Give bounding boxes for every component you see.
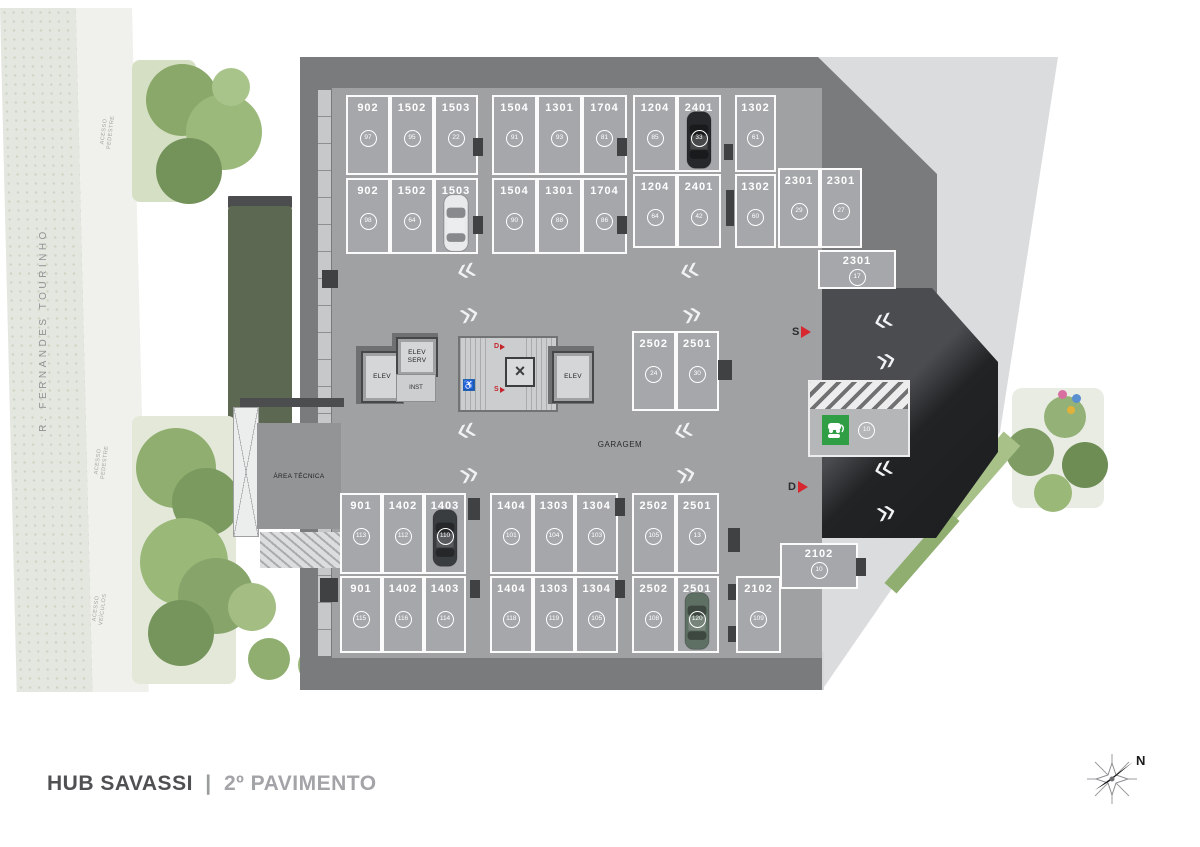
spot-number: 1502	[398, 102, 426, 114]
spot-number: 1504	[500, 185, 528, 197]
parking-spot-2102: 210210	[780, 543, 858, 589]
spot-id-badge: 33	[691, 130, 708, 147]
spot-number: 1504	[500, 102, 528, 114]
column-block	[322, 270, 338, 288]
column-block	[728, 528, 740, 552]
parking-spot-2501: 2501 120	[676, 576, 720, 653]
spot-number: 2301	[785, 175, 813, 187]
column-block	[724, 144, 733, 160]
spot-id-badge: 95	[404, 130, 421, 147]
parking-group-t2b: 150490130188170486	[492, 178, 627, 254]
parking-spot-1404: 1404118	[490, 576, 533, 653]
spot-id-badge: 105	[645, 528, 662, 545]
parking-spot-1403: 1403114	[424, 576, 466, 653]
stair-up-marker: S	[494, 386, 505, 393]
parking-group-b1a: 90111314021121403 110	[340, 493, 466, 574]
parking-group-t1c: 1204852401 33	[633, 95, 721, 172]
spot-id-badge: 30	[689, 366, 706, 383]
north-label: N	[1136, 753, 1145, 768]
column-block	[726, 190, 734, 226]
arrow-right-icon	[500, 344, 505, 350]
parking-spot-1502: 150264	[390, 178, 434, 254]
spot-number: 1303	[540, 500, 568, 512]
tree-blob	[1062, 442, 1108, 488]
floor-name: 2º PAVIMENTO	[224, 772, 377, 795]
parking-group-b2a: 90111514021161403114	[340, 576, 466, 653]
parking-group-b2b: 140411813031191304105	[490, 576, 618, 653]
spot-id-badge: 114	[437, 611, 454, 628]
spot-id-badge: 61	[747, 130, 764, 147]
spot-number: 901	[350, 583, 371, 595]
parking-spot-1301: 130188	[537, 178, 582, 254]
parking-spot-2501: 250130	[676, 331, 720, 411]
stair-up-label: S	[494, 386, 499, 393]
spot-number: 2502	[640, 500, 668, 512]
spot-id-badge: 109	[750, 611, 767, 628]
parking-spot-902: 90298	[346, 178, 390, 254]
spot-number: 1704	[590, 185, 618, 197]
spot-number: 2102	[744, 583, 772, 595]
left-wall-detail	[318, 90, 331, 656]
area-tecnica-room: ÁREA TÉCNICA	[257, 423, 341, 529]
ev-charging-icon	[822, 415, 849, 445]
parking-group-b1c: 2502105250113	[632, 493, 719, 574]
parking-spot-2501: 250113	[676, 493, 720, 574]
arrow-right-icon	[801, 326, 811, 338]
elevator-service: ELEV SERV	[396, 337, 438, 377]
accessibility-icon: ♿	[463, 379, 475, 391]
spot-id-badge: 86	[596, 213, 613, 230]
spot-number: 2501	[683, 338, 711, 350]
parking-spot-1503: 150322	[434, 95, 478, 175]
tree-blob	[1072, 394, 1081, 403]
spot-id-badge: 24	[645, 366, 662, 383]
column-block	[615, 498, 625, 516]
spot-number: 1303	[540, 583, 568, 595]
spot-number: 1502	[398, 185, 426, 197]
parking-spot-1303: 1303119	[533, 576, 576, 653]
spot-number: 2102	[805, 548, 833, 560]
parking-group-t2e: 230129230127	[778, 168, 862, 248]
tree-blob	[228, 583, 276, 631]
parking-group-t1d: 130261	[735, 95, 776, 172]
spot-number: 2502	[640, 583, 668, 595]
column-block	[728, 626, 736, 642]
spot-id-badge: 27	[833, 203, 850, 220]
arrow-right-icon	[500, 387, 505, 393]
parking-spot-1502: 150295	[390, 95, 434, 175]
spot-number: 902	[357, 185, 378, 197]
ramp-up-marker: S	[792, 326, 811, 338]
parking-spot-2401: 2401 33	[677, 95, 721, 172]
stair-down-label: D	[494, 343, 499, 350]
spot-id-badge: 103	[588, 528, 605, 545]
garagem-label: GARAGEM	[560, 440, 680, 449]
spot-id-badge: 119	[546, 611, 563, 628]
tree-blob	[212, 68, 250, 106]
parking-spot-1204: 120464	[633, 174, 677, 248]
spot-id-badge: 108	[645, 611, 662, 628]
parking-spot-1204: 120485	[633, 95, 677, 172]
elevator-right: ELEV	[552, 351, 594, 403]
parking-spot-1402: 1402112	[382, 493, 424, 574]
column-block	[470, 580, 480, 598]
column-block	[473, 138, 483, 156]
spot-number: 2501	[683, 500, 711, 512]
spot-id-badge: 88	[551, 213, 568, 230]
spot-id-badge: 90	[506, 213, 523, 230]
parking-spot-1302: 130260	[735, 174, 776, 248]
spot-number: 1402	[389, 583, 417, 595]
column-block	[617, 216, 627, 234]
parking-spot-2502: 2502108	[632, 576, 676, 653]
spot-number: 1404	[497, 500, 525, 512]
parking-group-h2301: 230117	[818, 250, 896, 289]
spot-id-badge: 104	[546, 528, 563, 545]
parking-spot-1403: 1403 110	[424, 493, 466, 574]
parking-group-t2d: 130260	[735, 174, 776, 248]
parking-group-b1b: 140410113031041304103	[490, 493, 618, 574]
compass-rose-icon	[1083, 750, 1141, 813]
spot-number: 1302	[741, 102, 769, 114]
parking-group-t1a: 90297150295150322	[346, 95, 478, 175]
spot-id-badge: 118	[503, 611, 520, 628]
parking-spot-2301: 230127	[820, 168, 862, 248]
spot-id-badge: 29	[791, 203, 808, 220]
parking-spot-1704: 170481	[582, 95, 627, 175]
parking-spot-2502: 250224	[632, 331, 676, 411]
column-block	[615, 580, 625, 598]
column-block	[320, 578, 338, 602]
parking-group-b2c: 25021082501 120	[632, 576, 719, 653]
column-block	[856, 558, 866, 576]
spot-id-badge: 120	[689, 611, 706, 628]
tree-blob	[228, 206, 292, 430]
spot-number: 1204	[641, 102, 669, 114]
arrow-right-icon	[798, 481, 808, 493]
spot-id-badge: 81	[596, 130, 613, 147]
spot-number: 1503	[442, 102, 470, 114]
parking-group-b2d: 2102109	[736, 576, 781, 653]
spot-id-badge: 98	[360, 213, 377, 230]
spot-number: 2301	[827, 175, 855, 187]
parking-spot-1504: 150490	[492, 178, 537, 254]
column-block	[617, 138, 627, 156]
spot-id-badge: 97	[360, 130, 377, 147]
parking-spot-1304: 1304103	[575, 493, 618, 574]
hatched-area	[260, 532, 340, 568]
ramp-down-label: D	[788, 481, 796, 493]
hatch-pattern	[810, 382, 908, 409]
tree-blob	[1034, 474, 1072, 512]
spot-id-badge: 10	[858, 422, 875, 439]
spot-id-badge: 101	[503, 528, 520, 545]
spot-id-badge: 22	[448, 130, 465, 147]
spot-id-badge: 13	[689, 528, 706, 545]
parking-spot-1301: 130193	[537, 95, 582, 175]
column-block	[718, 360, 732, 380]
spot-id-badge: 10	[811, 562, 828, 579]
parking-spot-1504: 150491	[492, 95, 537, 175]
parking-group-h2102: 210210	[780, 543, 858, 589]
spot-number: 1403	[431, 583, 459, 595]
spot-number: 1704	[590, 102, 618, 114]
parking-spot-2502: 2502105	[632, 493, 676, 574]
spot-number: 1402	[389, 500, 417, 512]
tree-blob	[156, 138, 222, 204]
spot-id-badge: 116	[395, 611, 412, 628]
spot-number: 1304	[582, 583, 610, 595]
column-block	[468, 498, 480, 520]
parking-group-t2a: 902981502641503	[346, 178, 478, 254]
spot-number: 1304	[582, 500, 610, 512]
spot-id-badge: 110	[437, 528, 454, 545]
parking-spot-901: 901113	[340, 493, 382, 574]
spot-id-badge: 17	[849, 269, 866, 286]
inst-room: INST	[396, 374, 436, 402]
spot-number: 1302	[741, 181, 769, 193]
parking-spot-1404: 1404101	[490, 493, 533, 574]
column-block	[728, 584, 736, 600]
tree-blob	[1067, 406, 1075, 414]
street-name-label: R. FERNANDES TOURINHO	[38, 180, 54, 480]
spot-number: 902	[357, 102, 378, 114]
car-icon	[439, 193, 473, 253]
stair-down-marker: D	[494, 343, 505, 350]
shaft-xbrace	[233, 407, 259, 537]
spot-id-badge: 115	[353, 611, 370, 628]
spot-id-badge: 64	[404, 213, 421, 230]
ramp-up-label: S	[792, 326, 799, 338]
area-tecnica-label: ÁREA TÉCNICA	[273, 473, 324, 480]
spot-id-badge: 93	[551, 130, 568, 147]
ramp-down-marker: D	[788, 481, 808, 493]
tree-blob	[248, 638, 290, 680]
parking-group-mid: 250224250130	[632, 331, 719, 411]
parking-spot-1503: 1503	[434, 178, 478, 254]
parking-spot-2102: 2102109	[736, 576, 781, 653]
column-block	[473, 216, 483, 234]
spot-number: 901	[350, 500, 371, 512]
elevator-shaft-icon: ×	[505, 357, 535, 387]
tree-blob	[148, 600, 214, 666]
spot-id-badge: 85	[647, 130, 664, 147]
spot-id-badge: 91	[506, 130, 523, 147]
parking-group-t2c: 120464240142	[633, 174, 721, 248]
tree-blob	[1044, 396, 1086, 438]
stair-treads	[460, 338, 490, 410]
parking-spot-2301: 230117	[818, 250, 896, 289]
parking-group-t1b: 150491130193170481	[492, 95, 627, 175]
project-name: HUB SAVASSI	[47, 772, 193, 795]
parking-spot-1402: 1402116	[382, 576, 424, 653]
spot-number: 2502	[640, 338, 668, 350]
spot-number: 2401	[685, 181, 713, 193]
parking-spot-1302: 130261	[735, 95, 776, 172]
parking-spot-2401: 240142	[677, 174, 721, 248]
spot-id-badge: 64	[647, 209, 664, 226]
spot-id-badge: 113	[353, 528, 370, 545]
parking-spot-1304: 1304105	[575, 576, 618, 653]
floor-plan-canvas: R. FERNANDES TOURINHO ACESSO PEDESTRE AC…	[0, 0, 1200, 847]
parking-spot-1303: 1303104	[533, 493, 576, 574]
title-separator: |	[205, 772, 211, 795]
page-title: HUB SAVASSI | 2º PAVIMENTO	[47, 772, 377, 796]
spot-number: 2301	[843, 255, 871, 267]
tree-blob	[1058, 390, 1067, 399]
parking-spot-902: 90297	[346, 95, 390, 175]
parking-spot-2301: 230129	[778, 168, 820, 248]
spot-id-badge: 42	[691, 209, 708, 226]
spot-id-badge: 60	[747, 209, 764, 226]
spot-number: 1404	[497, 583, 525, 595]
spot-number: 1204	[641, 181, 669, 193]
spot-number: 1301	[545, 185, 573, 197]
spot-id-badge: 105	[588, 611, 605, 628]
parking-spot-901: 901115	[340, 576, 382, 653]
spot-number: 1301	[545, 102, 573, 114]
spot-id-badge: 112	[395, 528, 412, 545]
wall-segment	[240, 398, 344, 407]
